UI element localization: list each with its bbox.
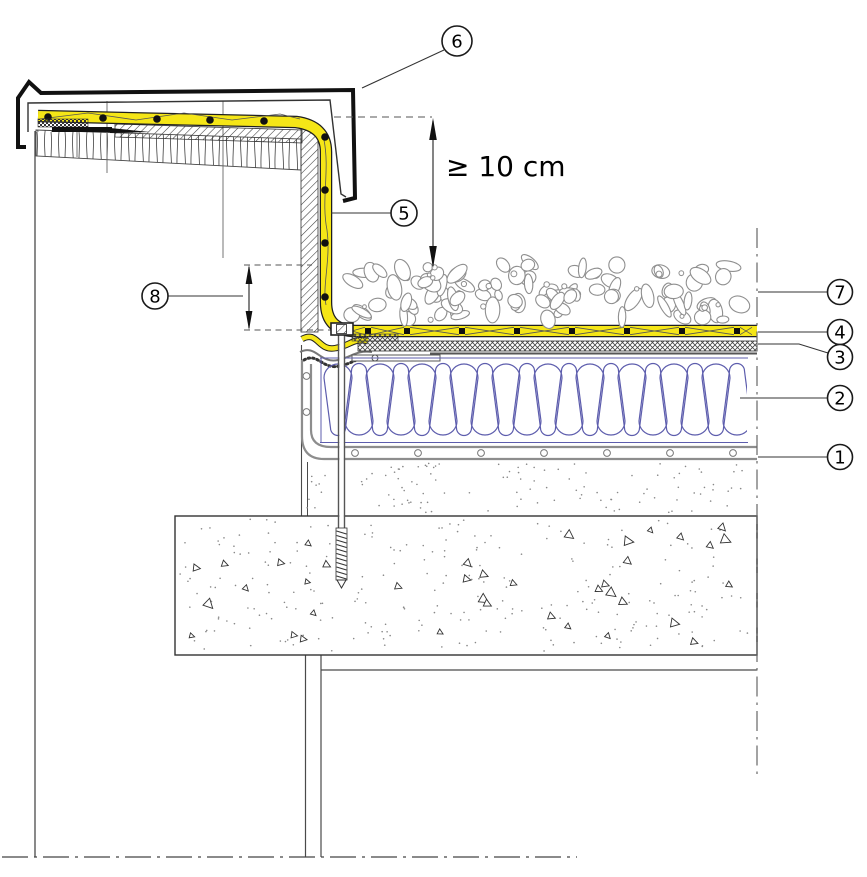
stipple-dot: [581, 494, 583, 496]
stipple-dot: [426, 465, 428, 467]
stipple-dot: [596, 636, 598, 638]
insulation-pattern: [324, 364, 751, 436]
stipple-dot: [444, 492, 446, 494]
stipple-dot: [410, 501, 412, 503]
stipple-dot: [598, 611, 600, 613]
stipple-dot: [646, 488, 648, 490]
gravel-pebble: [511, 271, 517, 277]
stipple-dot: [458, 524, 460, 526]
aggregate-triangle: [304, 578, 311, 584]
aggregate-triangle: [706, 541, 714, 548]
stipple-dot: [306, 565, 308, 567]
stipple-dot: [444, 556, 446, 558]
stipple-dot: [407, 500, 409, 502]
stipple-dot: [554, 499, 556, 501]
stipple-dot: [201, 528, 203, 530]
stipple-dot: [320, 603, 322, 605]
stipple-dot: [390, 466, 392, 468]
stipple-dot: [265, 561, 267, 563]
stipple-dot: [533, 467, 535, 469]
stipple-dot: [550, 640, 552, 642]
stipple-dot: [424, 559, 426, 561]
structure-lines: [35, 131, 757, 857]
stipple-dot: [253, 608, 255, 610]
stipple-dot: [572, 560, 574, 562]
stipple-dot: [632, 627, 634, 629]
stipple-dot: [287, 639, 289, 641]
aggregate-triangle: [668, 617, 679, 627]
aggregate-triangle: [323, 560, 331, 567]
insulation-layer: [320, 358, 751, 443]
membrane-square-dot: [514, 328, 520, 334]
aggregate-triangle: [221, 560, 229, 567]
stipple-dot: [402, 466, 404, 468]
stipple-dot: [233, 545, 235, 547]
stipple-dot: [434, 612, 436, 614]
stipple-dot: [698, 468, 700, 470]
stipple-dot: [646, 625, 648, 627]
stipple-dot: [314, 507, 316, 509]
gravel-pebble: [727, 293, 753, 316]
stipple-dot: [309, 572, 311, 574]
stipple-dot: [727, 490, 729, 492]
stipple-dot: [449, 523, 451, 525]
aggregate-triangle: [720, 533, 731, 543]
gravel-pebble: [486, 283, 491, 288]
aggregate-triangle: [305, 540, 312, 546]
stipple-dot: [551, 604, 553, 606]
gravel-pebble: [461, 281, 466, 286]
stipple-dot: [252, 578, 254, 580]
stipple-dot: [426, 573, 428, 575]
stipple-dot: [701, 646, 703, 648]
stipple-dot: [586, 609, 588, 611]
stipple-dot: [427, 502, 429, 504]
stipple-dot: [321, 491, 323, 493]
stipple-dot: [311, 476, 313, 478]
stipple-dot: [393, 505, 395, 507]
stipple-dot: [701, 605, 703, 607]
svg-text:8: 8: [149, 287, 160, 308]
stipple-dot: [445, 575, 447, 577]
stipple-dot: [713, 556, 715, 558]
stipple-dot: [670, 545, 672, 547]
gravel-pebble: [716, 303, 720, 307]
stipple-dot: [326, 556, 328, 558]
stipple-dot: [418, 630, 420, 632]
stipple-dot: [354, 601, 356, 603]
stipple-dot: [418, 620, 420, 622]
stipple-dot: [566, 605, 568, 607]
stipple-dot: [707, 576, 709, 578]
stipple-dot: [268, 532, 270, 534]
callout-6: 6: [362, 26, 472, 88]
gravel-pebble: [635, 287, 639, 291]
stipple-dot: [362, 484, 364, 486]
stipple-dot: [668, 512, 670, 514]
stipple-dot: [502, 600, 504, 602]
stipple-dot: [601, 642, 603, 644]
stipple-dot: [210, 586, 212, 588]
stipple-dot: [673, 477, 675, 479]
stipple-dot: [476, 547, 478, 549]
aggregate-triangle: [618, 597, 627, 605]
stipple-dot: [747, 632, 749, 634]
stipple-dot: [234, 623, 236, 625]
gravel-pebble: [702, 305, 708, 311]
stipple-dot: [399, 550, 401, 552]
membrane-dot: [321, 186, 329, 194]
stipple-dot: [226, 620, 228, 622]
stipple-dot: [441, 527, 443, 529]
callout-4: 4: [758, 320, 853, 345]
gravel-pebble: [481, 304, 486, 309]
stipple-dot: [685, 466, 687, 468]
stipple-dot: [529, 488, 531, 490]
stipple-dot: [320, 619, 322, 621]
stipple-dot: [463, 519, 465, 521]
gravel-pebble: [431, 276, 435, 280]
stipple-dot: [268, 564, 270, 566]
membrane-dot: [321, 133, 329, 141]
stipple-dot: [545, 629, 547, 631]
stipple-dot: [511, 613, 513, 615]
stipple-dot: [619, 509, 621, 511]
stipple-dot: [687, 543, 689, 545]
stipple-dot: [463, 612, 465, 614]
stipple-dot: [600, 499, 602, 501]
stipple-dot: [284, 602, 286, 604]
stipple-dot: [713, 640, 715, 642]
stipple-dot: [541, 607, 543, 609]
stipple-dot: [367, 632, 369, 634]
stipple-dot: [421, 624, 423, 626]
stipple-dot: [390, 547, 392, 549]
stipple-dot: [583, 486, 585, 488]
svg-text:5: 5: [398, 204, 409, 225]
membrane-dot: [321, 293, 329, 301]
callout-1: 1: [758, 445, 853, 470]
stipple-dot: [311, 481, 313, 483]
membrane-dot: [260, 117, 268, 125]
stipple-dot: [656, 613, 658, 615]
stipple-dot: [526, 463, 528, 465]
stipple-dot: [505, 617, 507, 619]
stipple-dot: [546, 538, 548, 540]
stipple-dot: [614, 510, 616, 512]
stipple-dot: [310, 589, 312, 591]
stipple-dot: [218, 616, 220, 618]
stipple-dot: [417, 466, 419, 468]
stipple-dot: [691, 631, 693, 633]
stipple-dot: [332, 617, 334, 619]
stipple-dot: [353, 638, 355, 640]
min-overlap-text: ≥ 10 cm: [446, 150, 566, 183]
stipple-dot: [217, 540, 219, 542]
stipple-dot: [239, 534, 241, 536]
stipple-dot: [422, 493, 424, 495]
stipple-dot: [274, 521, 276, 523]
stipple-dot: [401, 503, 403, 505]
aggregate-triangle: [437, 629, 443, 634]
stipple-dot: [731, 595, 733, 597]
stipple-dot: [327, 525, 329, 527]
stipple-dot: [480, 609, 482, 611]
stipple-dot: [444, 550, 446, 552]
stipple-dot: [690, 604, 692, 606]
gravel-pebble: [363, 305, 367, 309]
stipple-dot: [559, 617, 561, 619]
stipple-dot: [403, 606, 405, 608]
aggregate-triangle: [203, 597, 216, 609]
vapour-circle: [730, 450, 737, 457]
stipple-dot: [704, 487, 706, 489]
gravel-pebble: [680, 314, 684, 318]
stipple-dot: [295, 608, 297, 610]
stipple-dot: [397, 478, 399, 480]
aggregate-triangle: [605, 632, 612, 639]
membrane-dot: [321, 239, 329, 247]
stipple-dot: [274, 542, 276, 544]
stipple-dot: [286, 606, 288, 608]
stipple-dot: [187, 580, 189, 582]
stipple-dot: [490, 535, 492, 537]
stipple-dot: [310, 526, 312, 528]
stipple-dot: [691, 547, 693, 549]
stipple-dot: [617, 492, 619, 494]
svg-text:7: 7: [834, 283, 845, 304]
gravel-pebble: [717, 316, 729, 324]
gravel-pebble: [683, 291, 693, 310]
aggregate-triangle: [595, 585, 603, 591]
aggregate-triangle: [394, 582, 402, 589]
stipple-dot: [575, 489, 577, 491]
stipple-dot: [393, 499, 395, 501]
stipple-dot: [630, 630, 632, 632]
stipple-dot: [614, 629, 616, 631]
stipple-dot: [537, 523, 539, 525]
aggregate-triangle: [463, 558, 473, 567]
svg-text:3: 3: [834, 348, 845, 369]
stipple-dot: [609, 574, 611, 576]
stipple-dot: [442, 582, 444, 584]
aggregate-triangle: [547, 612, 555, 619]
svg-text:2: 2: [834, 389, 845, 410]
stipple-dot: [678, 633, 680, 635]
callout-8: 8: [142, 283, 243, 309]
stipple-dot: [520, 498, 522, 500]
stipple-dot: [214, 587, 216, 589]
aggregate-triangle: [564, 529, 575, 538]
stipple-dot: [477, 596, 479, 598]
stipple-dot: [668, 614, 670, 616]
stipple-dot: [611, 499, 613, 501]
stipple-dot: [659, 463, 661, 465]
stipple-dot: [416, 484, 418, 486]
stipple-dot: [433, 467, 435, 469]
aggregate-triangle: [242, 584, 250, 591]
stipple-dot: [267, 584, 269, 586]
stipple-dot: [266, 519, 268, 521]
stipple-dot: [713, 484, 715, 486]
gravel-pebble: [427, 273, 431, 277]
upstand-dimension: [246, 265, 253, 330]
concrete-deck: [306, 463, 742, 514]
gravel-pebble: [618, 307, 626, 328]
stipple-dot: [650, 644, 652, 646]
stipple-dot: [420, 507, 422, 509]
membrane-dot: [99, 114, 107, 122]
stipple-dot: [411, 481, 413, 483]
stipple-dot: [594, 599, 596, 601]
stipple-dot: [521, 553, 523, 555]
stipple-dot: [691, 581, 693, 583]
aggregate-triangle: [188, 632, 194, 638]
stipple-dot: [516, 506, 518, 508]
stipple-dot: [517, 467, 519, 469]
stipple-dot: [740, 488, 742, 490]
stipple-dot: [329, 543, 331, 545]
stipple-dot: [509, 580, 511, 582]
stipple-dot: [313, 590, 315, 592]
svg-text:1: 1: [834, 448, 845, 469]
membrane-dot: [153, 115, 161, 123]
stipple-dot: [583, 542, 585, 544]
stipple-dot: [487, 510, 489, 512]
separation-fleece: [352, 334, 757, 361]
stipple-dot: [649, 600, 651, 602]
stipple-dot: [560, 531, 562, 533]
stipple-dot: [214, 630, 216, 632]
aggregate-triangle: [718, 522, 728, 531]
stipple-dot: [435, 465, 437, 467]
stipple-dot: [693, 580, 695, 582]
stipple-dot: [205, 631, 207, 633]
stipple-dot: [568, 478, 570, 480]
stipple-dot: [361, 588, 363, 590]
stipple-dot: [518, 472, 520, 474]
stipple-dot: [209, 527, 211, 529]
stipple-dot: [485, 630, 487, 632]
stipple-dot: [653, 602, 655, 604]
stipple-dot: [365, 602, 367, 604]
stipple-dot: [239, 553, 241, 555]
stipple-dot: [591, 602, 593, 604]
stipple-dot: [573, 642, 575, 644]
stipple-dot: [185, 566, 187, 568]
stipple-dot: [394, 563, 396, 565]
stipple-dot: [733, 471, 735, 473]
membrane-square-dot: [679, 328, 685, 334]
stipple-dot: [585, 580, 587, 582]
aggregate-triangle: [289, 630, 297, 638]
stipple-dot: [249, 627, 251, 629]
stipple-dot: [588, 586, 590, 588]
stipple-dot: [498, 464, 500, 466]
stipple-dot: [324, 475, 326, 477]
stipple-dot: [611, 546, 613, 548]
stipple-dot: [422, 545, 424, 547]
stipple-dot: [219, 544, 221, 546]
svg-text:6: 6: [451, 32, 462, 53]
stipple-dot: [694, 591, 696, 593]
stipple-dot: [370, 626, 372, 628]
stipple-dot: [357, 598, 359, 600]
stipple-dot: [660, 583, 662, 585]
stipple-dot: [483, 581, 485, 583]
stipple-dot: [658, 520, 660, 522]
stipple-dot: [671, 510, 673, 512]
membrane-square-dot: [365, 328, 371, 334]
stipple-dot: [428, 463, 430, 465]
stipple-dot: [318, 483, 320, 485]
stipple-dot: [383, 638, 385, 640]
stipple-dot: [571, 558, 573, 560]
stipple-dot: [548, 525, 550, 527]
stipple-dot: [484, 542, 486, 544]
gravel-pebble: [589, 284, 605, 296]
stipple-dot: [386, 631, 388, 633]
stipple-dot: [701, 471, 703, 473]
stipple-dot: [362, 576, 364, 578]
stipple-dot: [370, 525, 372, 527]
stipple-dot: [194, 640, 196, 642]
stipple-dot: [371, 473, 373, 475]
vapour-circle: [303, 373, 310, 380]
stipple-dot: [620, 641, 622, 643]
membrane-square-dot: [734, 328, 740, 334]
stipple-dot: [740, 597, 742, 599]
aggregate-triangle: [606, 586, 617, 596]
stipple-dot: [657, 474, 659, 476]
stipple-dot: [401, 487, 403, 489]
stipple-dot: [371, 536, 373, 538]
stipple-dot: [679, 570, 681, 572]
stipple-dot: [315, 484, 317, 486]
callout-7: 7: [758, 280, 853, 305]
membrane-square-dot: [404, 328, 410, 334]
stipple-dot: [585, 472, 587, 474]
concrete-aggregate-triangles: [188, 522, 732, 644]
stipple-dot: [285, 641, 287, 643]
vapour-circle: [604, 450, 611, 457]
stipple-dot: [506, 476, 508, 478]
stipple-dot: [438, 463, 440, 465]
vapour-circle: [352, 450, 359, 457]
stipple-dot: [361, 481, 363, 483]
stipple-dot: [726, 505, 728, 507]
stipple-dot: [389, 635, 391, 637]
stipple-dot: [674, 595, 676, 597]
stipple-dot: [628, 602, 630, 604]
aggregate-triangle: [191, 563, 200, 572]
stipple-dot: [403, 490, 405, 492]
stipple-dot: [520, 478, 522, 480]
stipple-dot: [219, 578, 221, 580]
membrane-dot: [206, 116, 214, 124]
gravel-pebble: [639, 283, 656, 309]
stipple-dot: [654, 497, 656, 499]
membrane-square-dot: [624, 328, 630, 334]
stipple-dot: [189, 606, 191, 608]
aggregate-triangle: [510, 579, 517, 585]
stipple-dot: [721, 597, 723, 599]
stipple-dot: [722, 582, 724, 584]
stipple-dot: [306, 507, 308, 509]
stipple-dot: [619, 647, 621, 649]
callout-3: 3: [758, 344, 853, 370]
stipple-dot: [635, 621, 637, 623]
